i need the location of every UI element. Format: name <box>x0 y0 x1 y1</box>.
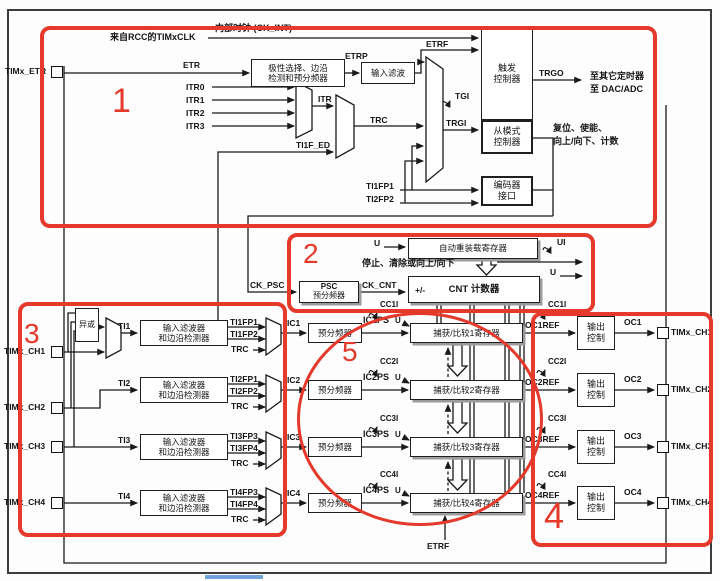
capture-compare-register-2: 捕获/比较2寄存器 <box>410 380 523 400</box>
ti3-label: TI3 <box>118 436 130 445</box>
output-control-box-2: 输出控制 <box>577 373 615 407</box>
etrp-label: ETRP <box>345 52 368 61</box>
itr-label: ITR <box>318 95 332 104</box>
input-filter-box-3: 输入滤波器和边沿检测器 <box>140 434 228 460</box>
ic4-label: IC4 <box>287 489 300 498</box>
ic1-label: IC1 <box>287 319 300 328</box>
ti3fp3-label: TI3FP3 <box>230 432 258 441</box>
oc1-label: OC1 <box>624 318 641 327</box>
ch3-in-pin <box>51 441 63 453</box>
trgo-dest-label-2: 至 DAC/ADC <box>590 85 643 94</box>
prescaler-box-2: 预分频器 <box>308 380 362 400</box>
ch2-in-pin <box>51 402 63 414</box>
ti2fp1-label: TI2FP1 <box>230 375 258 384</box>
trgi-label: TRGI <box>446 119 466 128</box>
ti4fp4-label: TI4FP4 <box>230 500 258 509</box>
annotation-number-4: 4 <box>544 498 564 534</box>
ti2fp2-label: TI2FP2 <box>230 387 258 396</box>
auto-reload-register-box: 自动重装载寄存器 <box>408 238 538 259</box>
itr0-label: ITR0 <box>186 83 204 92</box>
cc1i-out-event-icon <box>537 313 545 316</box>
cnt-counter-box: +/- CNT 计数器 <box>408 276 540 303</box>
oc4-label: OC4 <box>624 488 641 497</box>
ch3-out-port-label: TIMx_CH3 <box>671 442 712 451</box>
trgo-dest-label-1: 至其它定时器 <box>590 72 644 81</box>
slave-actions-label-1: 复位、使能、 <box>553 124 607 133</box>
compare-arrow-1 <box>448 345 467 376</box>
etrf-bottom-label: ETRF <box>427 542 449 551</box>
oc3-label: OC3 <box>624 432 641 441</box>
trigger-controller-box: 触发 控制器 <box>481 28 533 120</box>
plus-minus-label: +/- <box>415 285 425 295</box>
prescaler-box-4: 预分频器 <box>308 493 362 513</box>
ch1-out-port-label: TIMx_CH1 <box>671 328 712 337</box>
ic2-mux <box>266 375 281 412</box>
ic2ps-label: IC2PS <box>363 373 389 382</box>
ch2-out-port-label: TIMx_CH2 <box>671 385 712 394</box>
ui-event-icon <box>543 247 551 250</box>
trc-label-4: TRC <box>231 515 248 524</box>
ic2-label: IC2 <box>287 376 300 385</box>
oc2ref-label: OC2REF <box>525 378 559 387</box>
ti2-label: TI2 <box>118 379 130 388</box>
capture-compare-register-3: 捕获/比较3寄存器 <box>410 437 523 457</box>
annotation-number-5: 5 <box>342 338 358 366</box>
cc2i-out-label: CC2I <box>548 358 566 366</box>
ch2-port-label: TIMx_CH2 <box>4 403 45 412</box>
annotation-number-1: 1 <box>112 84 131 118</box>
capture-compare-register-1: 捕获/比较1寄存器 <box>410 323 523 343</box>
u-flag-1: U <box>395 317 401 325</box>
capture-compare-register-4: 捕获/比较4寄存器 <box>410 493 523 513</box>
cc2i-out-event-icon <box>537 370 545 373</box>
itr3-label: ITR3 <box>186 122 204 131</box>
output-control-box-4: 输出控制 <box>577 486 615 520</box>
ic4ps-label: IC4PS <box>363 486 389 495</box>
ti1fp2-label: TI1FP2 <box>230 330 258 339</box>
ti2fp2-top-label: TI2FP2 <box>366 195 394 204</box>
bottom-blue-line <box>205 575 263 579</box>
ch4-out-pin <box>657 497 669 509</box>
output-control-box-3: 输出控制 <box>577 430 615 464</box>
oc2-label: OC2 <box>624 375 641 384</box>
ch2-out-pin <box>657 384 669 396</box>
cc4i-label: CC4I <box>380 471 398 479</box>
trgo-label: TRGO <box>539 69 564 78</box>
input-filter-box-4: 输入滤波器和边沿检测器 <box>140 490 228 516</box>
ti3fp4-label: TI3FP4 <box>230 444 258 453</box>
output-control-box-1: 输出控制 <box>577 316 615 350</box>
ic4-mux <box>266 488 281 525</box>
ti4fp3-label: TI4FP3 <box>230 488 258 497</box>
cc1i-out-label: CC1I <box>548 301 566 309</box>
ch1-out-pin <box>657 327 669 339</box>
trc-top-label: TRC <box>370 116 387 125</box>
itr2-label: ITR2 <box>186 109 204 118</box>
itr-mux <box>296 82 312 138</box>
rcc-clock-label: 来自RCC的TIMxCLK <box>110 33 196 42</box>
ti1f-ed-label: TI1F_ED <box>296 141 330 150</box>
ic1ps-label: IC1PS <box>363 316 389 325</box>
input-filter-box-1: 输入滤波器和边沿检测器 <box>140 320 228 346</box>
internal-clock-label: 内部时钟 (CK_INT) <box>215 24 292 33</box>
update-arrow <box>477 257 496 275</box>
etr-input-filter-box: 输入滤波 <box>361 62 415 84</box>
cc4i-out-event-icon <box>537 483 545 486</box>
ch1-in-pin <box>51 346 63 358</box>
ch4-port-label: TIMx_CH4 <box>4 498 45 507</box>
ch4-in-pin <box>51 497 63 509</box>
ck-cnt-label: CK_CNT <box>362 281 396 290</box>
ti4-label: TI4 <box>118 492 130 501</box>
annotation-number-3: 3 <box>24 320 40 348</box>
u-out-label: U <box>550 268 556 277</box>
ti1-label: TI1 <box>118 322 130 331</box>
cc2i-label: CC2I <box>380 358 398 366</box>
polarity-prescaler-box: 极性选择、边沿 检测和预分频器 <box>251 59 345 87</box>
psc-prescaler-box: PSC 预分频器 <box>299 281 359 303</box>
u-flag-3: U <box>395 431 401 439</box>
cc1i-label: CC1I <box>380 301 398 309</box>
u-flag-2: U <box>395 374 401 382</box>
trgi-mux <box>426 57 443 182</box>
etr-port-label: TIMx_ETR <box>5 67 46 76</box>
cc3i-label: CC3I <box>380 415 398 423</box>
ic3-label: IC3 <box>287 433 300 442</box>
trc-label-3: TRC <box>231 459 248 468</box>
ui-label: UI <box>557 238 566 247</box>
u-flag-label: U <box>374 239 380 248</box>
u-flag-4: U <box>395 487 401 495</box>
ti1fp1-label: TI1FP1 <box>230 318 258 327</box>
etr-port-pin <box>51 66 63 78</box>
xor-box: 异或 <box>75 308 99 342</box>
input-filter-box-2: 输入滤波器和边沿检测器 <box>140 377 228 403</box>
ic3ps-label: IC3PS <box>363 430 389 439</box>
ch3-port-label: TIMx_CH3 <box>4 442 45 451</box>
etrf-label: ETRF <box>426 40 448 49</box>
timer-block-diagram: 内部时钟 (CK_INT) 来自RCC的TIMxCLK TIMx_ETR ETR… <box>0 0 720 581</box>
cc3i-out-event-icon <box>537 427 545 430</box>
tgi-label: TGI <box>455 92 469 101</box>
trc-mux <box>336 95 354 158</box>
ic3-mux <box>266 432 281 469</box>
cc3i-out-label: CC3I <box>548 415 566 423</box>
trc-label-2: TRC <box>231 402 248 411</box>
oc1ref-label: OC1REF <box>525 321 559 330</box>
oc3ref-label: OC3REF <box>525 435 559 444</box>
cc4i-out-label: CC4I <box>548 471 566 479</box>
ic1-mux <box>266 318 281 355</box>
stop-clear-label: 停止、清除或向上/向下 <box>362 259 455 268</box>
encoder-interface-box: 编码器 接口 <box>481 176 533 206</box>
compare-arrow-3 <box>448 459 467 490</box>
annotation-number-2: 2 <box>303 240 319 268</box>
etr-signal-label: ETR <box>183 61 200 70</box>
itr1-label: ITR1 <box>186 96 204 105</box>
slave-actions-label-2: 向上/向下、计数 <box>553 137 619 146</box>
compare-arrow-2 <box>448 402 467 433</box>
prescaler-box-3: 预分频器 <box>308 437 362 457</box>
ch3-out-pin <box>657 441 669 453</box>
ti1fp1-top-label: TI1FP1 <box>366 182 394 191</box>
ck-psc-label: CK_PSC <box>250 281 284 290</box>
slave-mode-controller-box: 从模式 控制器 <box>481 120 533 154</box>
ch4-out-port-label: TIMx_CH4 <box>671 498 712 507</box>
trc-label-1: TRC <box>231 345 248 354</box>
